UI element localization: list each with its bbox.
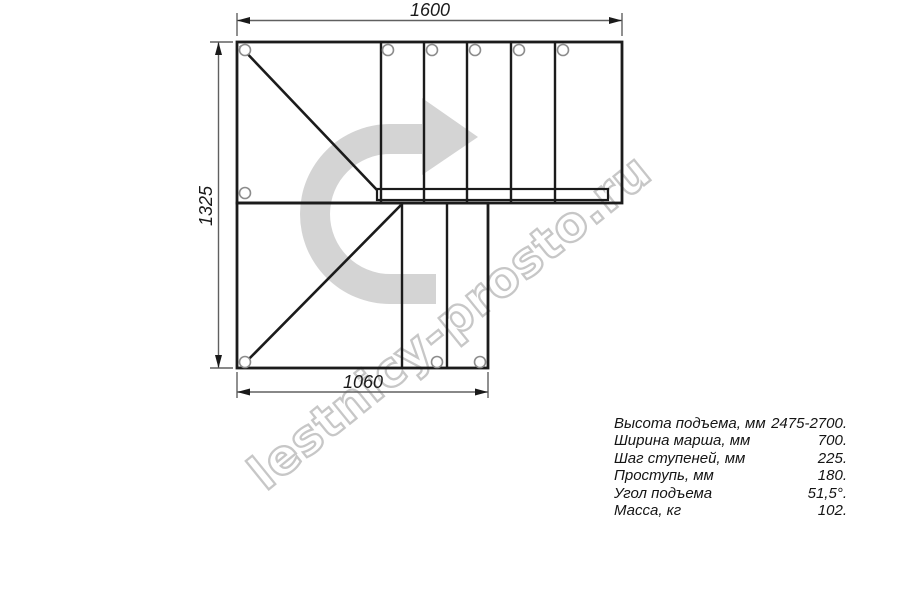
spec-value: 2475-2700. — [771, 415, 847, 432]
upper-flight — [237, 42, 622, 203]
dimension-arrowheads — [215, 17, 622, 396]
dimension-label-bottom: 1060 — [343, 372, 383, 392]
spec-label: Угол подъема — [614, 485, 712, 502]
spec-row-tread: Проступь, мм 180. — [614, 467, 847, 484]
spec-row-flight-width: Ширина марша, мм 700. — [614, 432, 847, 449]
spec-value: 51,5°. — [808, 485, 847, 502]
spec-label: Шаг ступеней, мм — [614, 450, 745, 467]
upper-flight-outline — [237, 42, 622, 203]
upper-landing-diagonal — [240, 46, 377, 190]
spec-table: Высота подъема, мм 2475-2700. Ширина мар… — [614, 415, 847, 519]
spec-label: Масса, кг — [614, 502, 681, 519]
spec-row-rise-angle: Угол подъема 51,5°. — [614, 485, 847, 502]
spec-label: Проступь, мм — [614, 467, 714, 484]
spec-row-mass: Масса, кг 102. — [614, 502, 847, 519]
stringer-bar — [377, 189, 608, 200]
spec-row-step-pitch: Шаг ступеней, мм 225. — [614, 450, 847, 467]
spec-value: 180. — [818, 467, 847, 484]
dimension-label-top: 1600 — [410, 0, 450, 20]
spec-value: 700. — [818, 432, 847, 449]
spec-value: 102. — [818, 502, 847, 519]
lower-flight — [237, 203, 488, 368]
lower-flight-outline — [237, 203, 488, 368]
lower-flight-step-dividers — [402, 203, 447, 368]
spec-label: Высота подъема, мм — [614, 415, 766, 432]
stair-plan-page: lestnicy-prosto.ru 1600 — [0, 0, 900, 600]
upper-flight-step-dividers — [381, 42, 555, 203]
dimension-lines — [210, 13, 622, 398]
spec-row-rise-height: Высота подъема, мм 2475-2700. — [614, 415, 847, 432]
spec-value: 225. — [818, 450, 847, 467]
dimension-label-left: 1325 — [196, 185, 216, 226]
spec-label: Ширина марша, мм — [614, 432, 750, 449]
lower-landing-diagonal — [242, 205, 401, 366]
